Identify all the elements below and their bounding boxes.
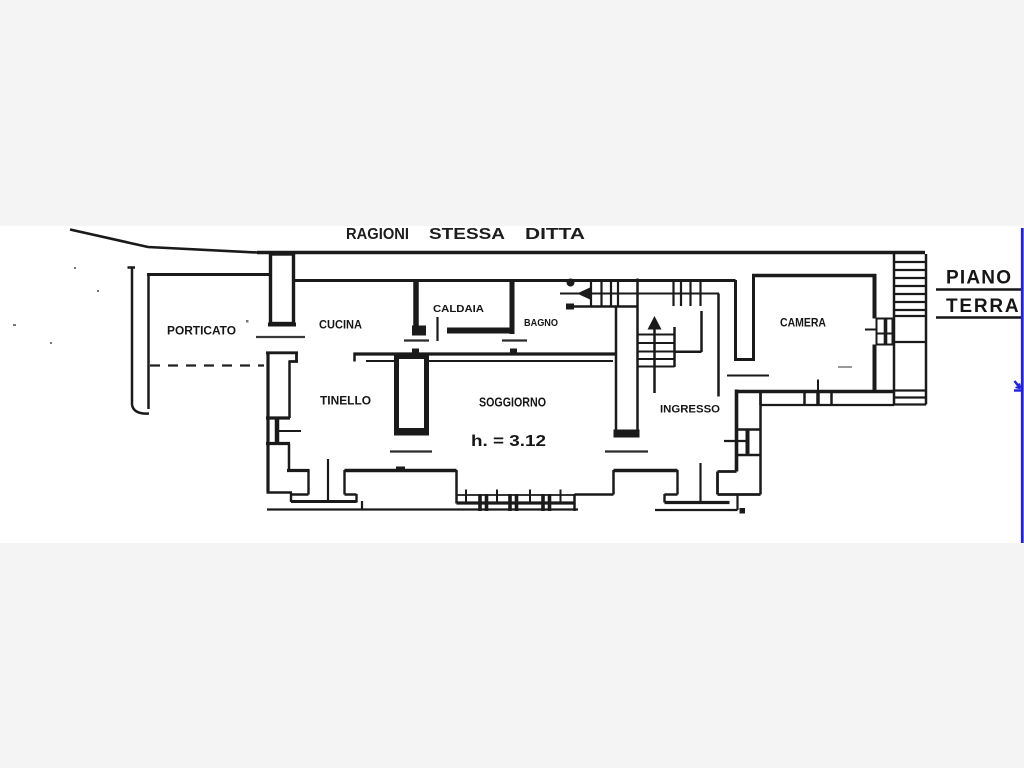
svg-text:CALDAIA: CALDAIA xyxy=(433,303,484,315)
svg-text:RAGIONI: RAGIONI xyxy=(346,226,409,243)
svg-text:CAMERA: CAMERA xyxy=(780,316,826,330)
svg-text:STESSA: STESSA xyxy=(429,226,506,243)
svg-text:INGRESSO: INGRESSO xyxy=(660,404,720,416)
svg-text:h. = 3.12: h. = 3.12 xyxy=(471,433,546,450)
svg-text:SOGGIORNO: SOGGIORNO xyxy=(479,396,546,410)
svg-text:BAGNO: BAGNO xyxy=(524,318,558,329)
svg-text:TERRA: TERRA xyxy=(946,296,1020,317)
svg-text:PORTICATO: PORTICATO xyxy=(167,324,236,338)
svg-text:CUCINA: CUCINA xyxy=(319,318,362,332)
svg-text:DITTA: DITTA xyxy=(525,226,586,243)
svg-text:TINELLO: TINELLO xyxy=(320,394,371,408)
svg-text:PIANO: PIANO xyxy=(946,268,1012,289)
